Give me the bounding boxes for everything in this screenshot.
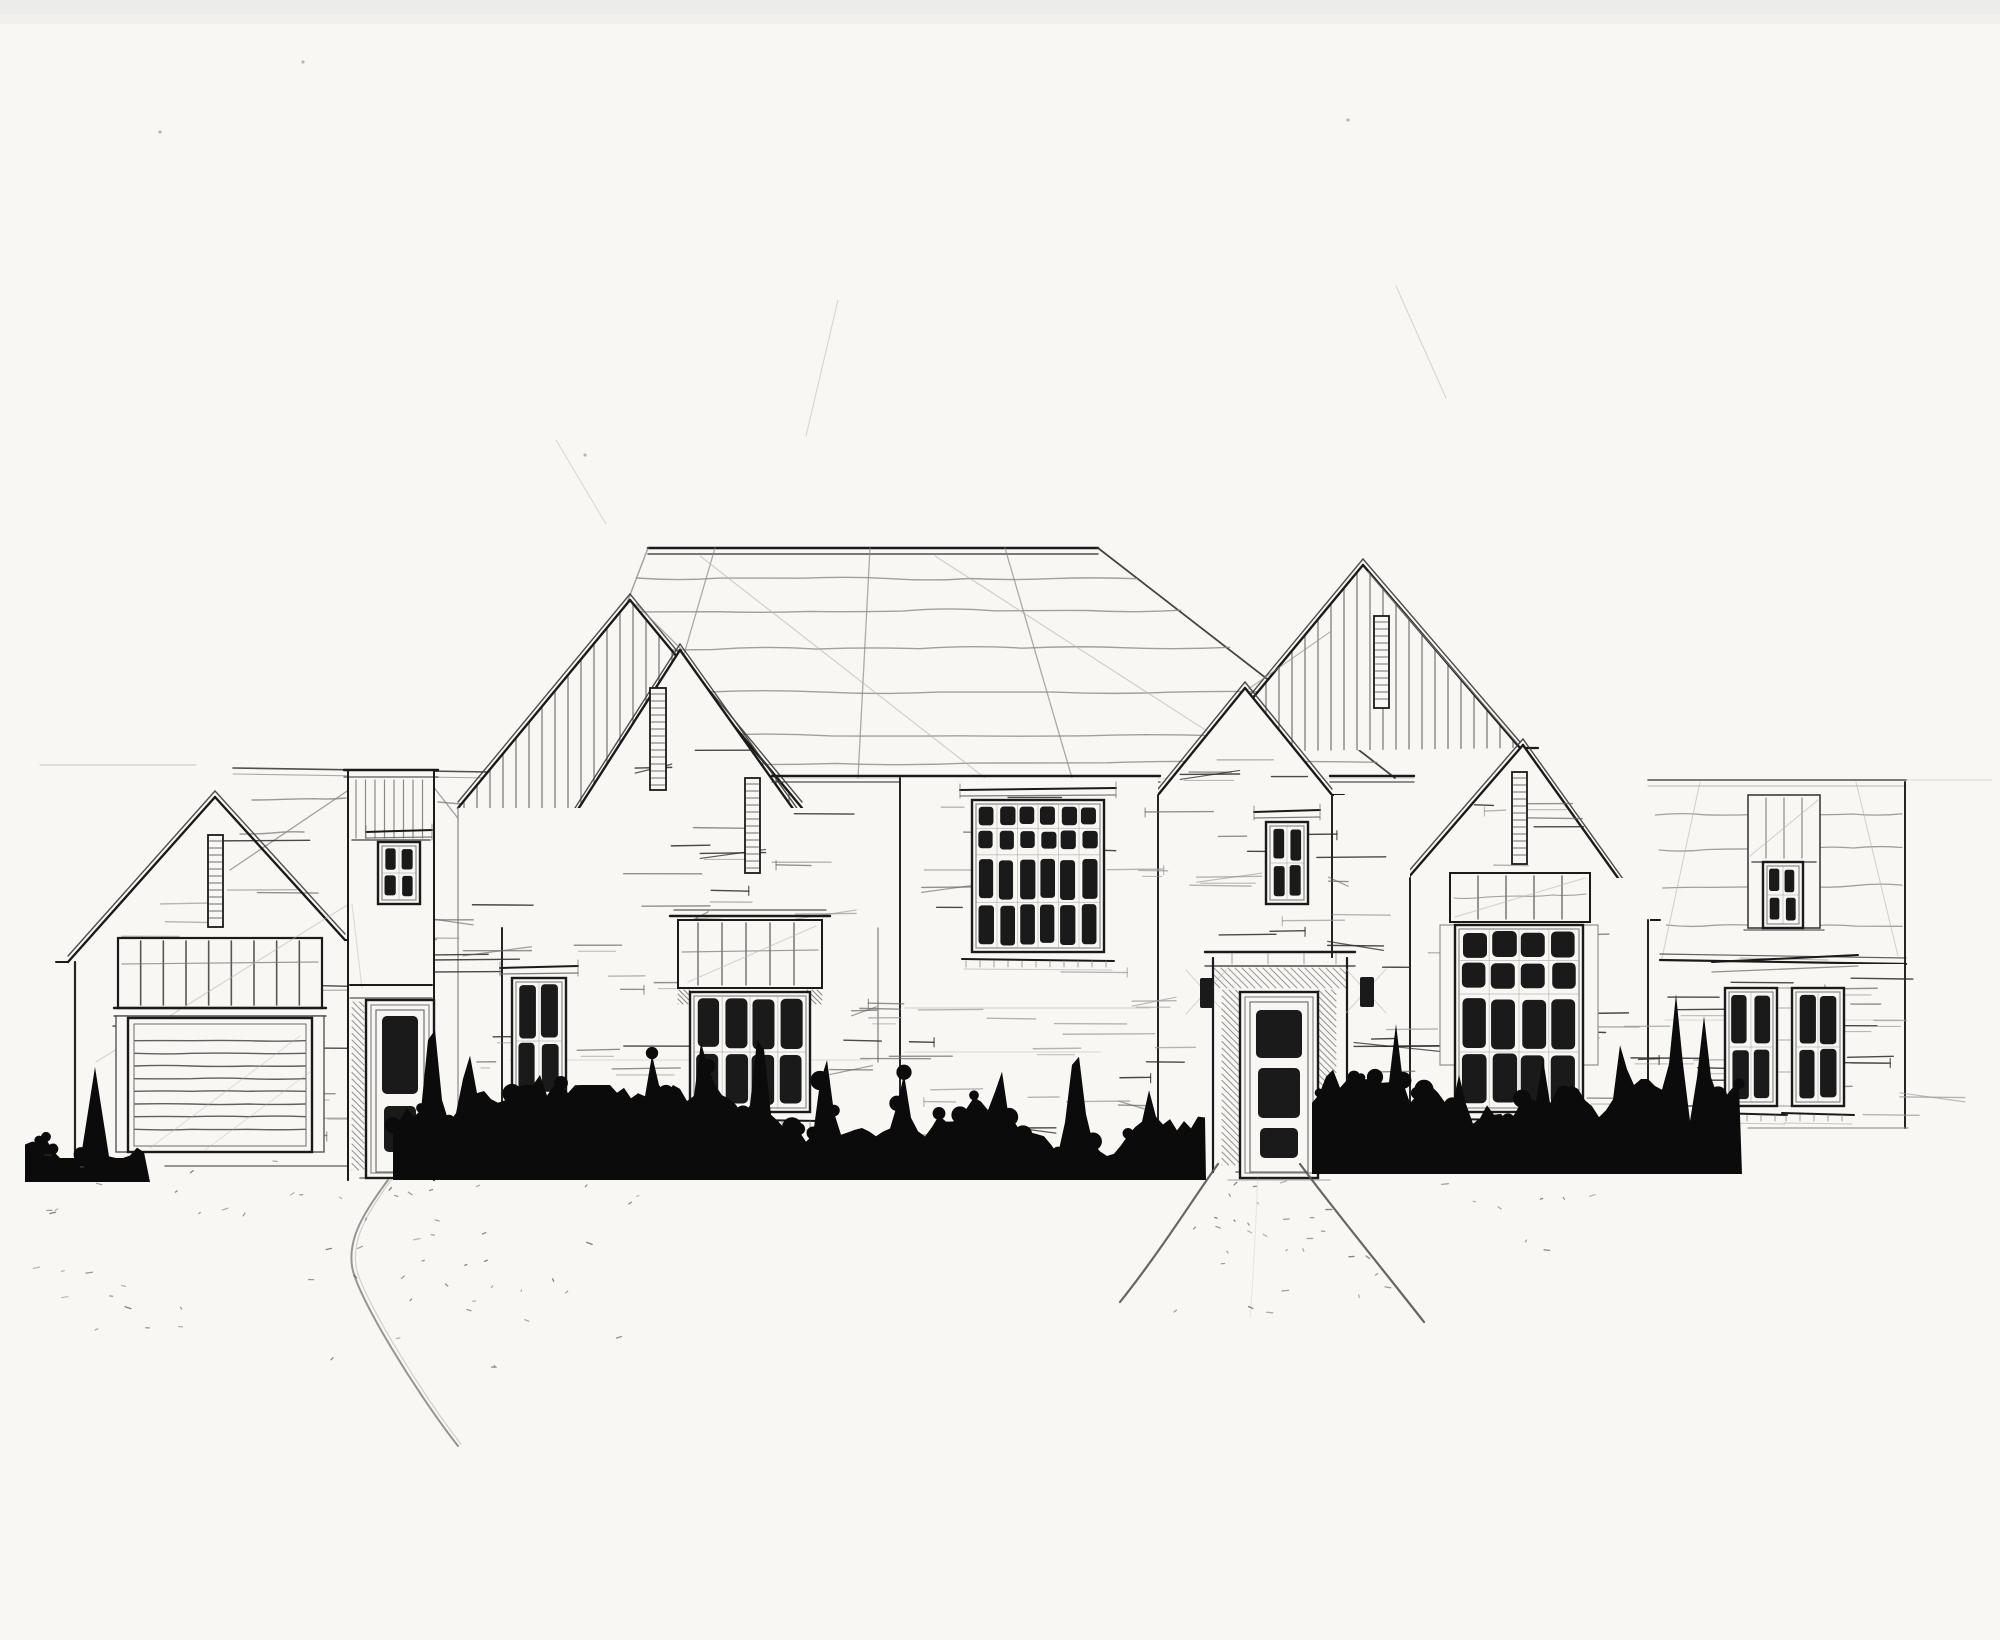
great-room-window <box>960 782 1116 970</box>
left-back-gable-vent <box>650 688 666 790</box>
front-door <box>1240 992 1318 1178</box>
right-wing-dormer-window <box>1763 862 1803 928</box>
right-back-gable-vent <box>1374 616 1389 708</box>
left-front-gable-vent <box>745 778 760 873</box>
elevation-drawing <box>0 0 2000 1640</box>
garage-gable-vent <box>208 835 223 927</box>
sketch-sheet <box>0 0 2000 1640</box>
right-wing-window-right <box>1782 988 1854 1124</box>
right-front-gable-vent <box>1512 772 1527 864</box>
